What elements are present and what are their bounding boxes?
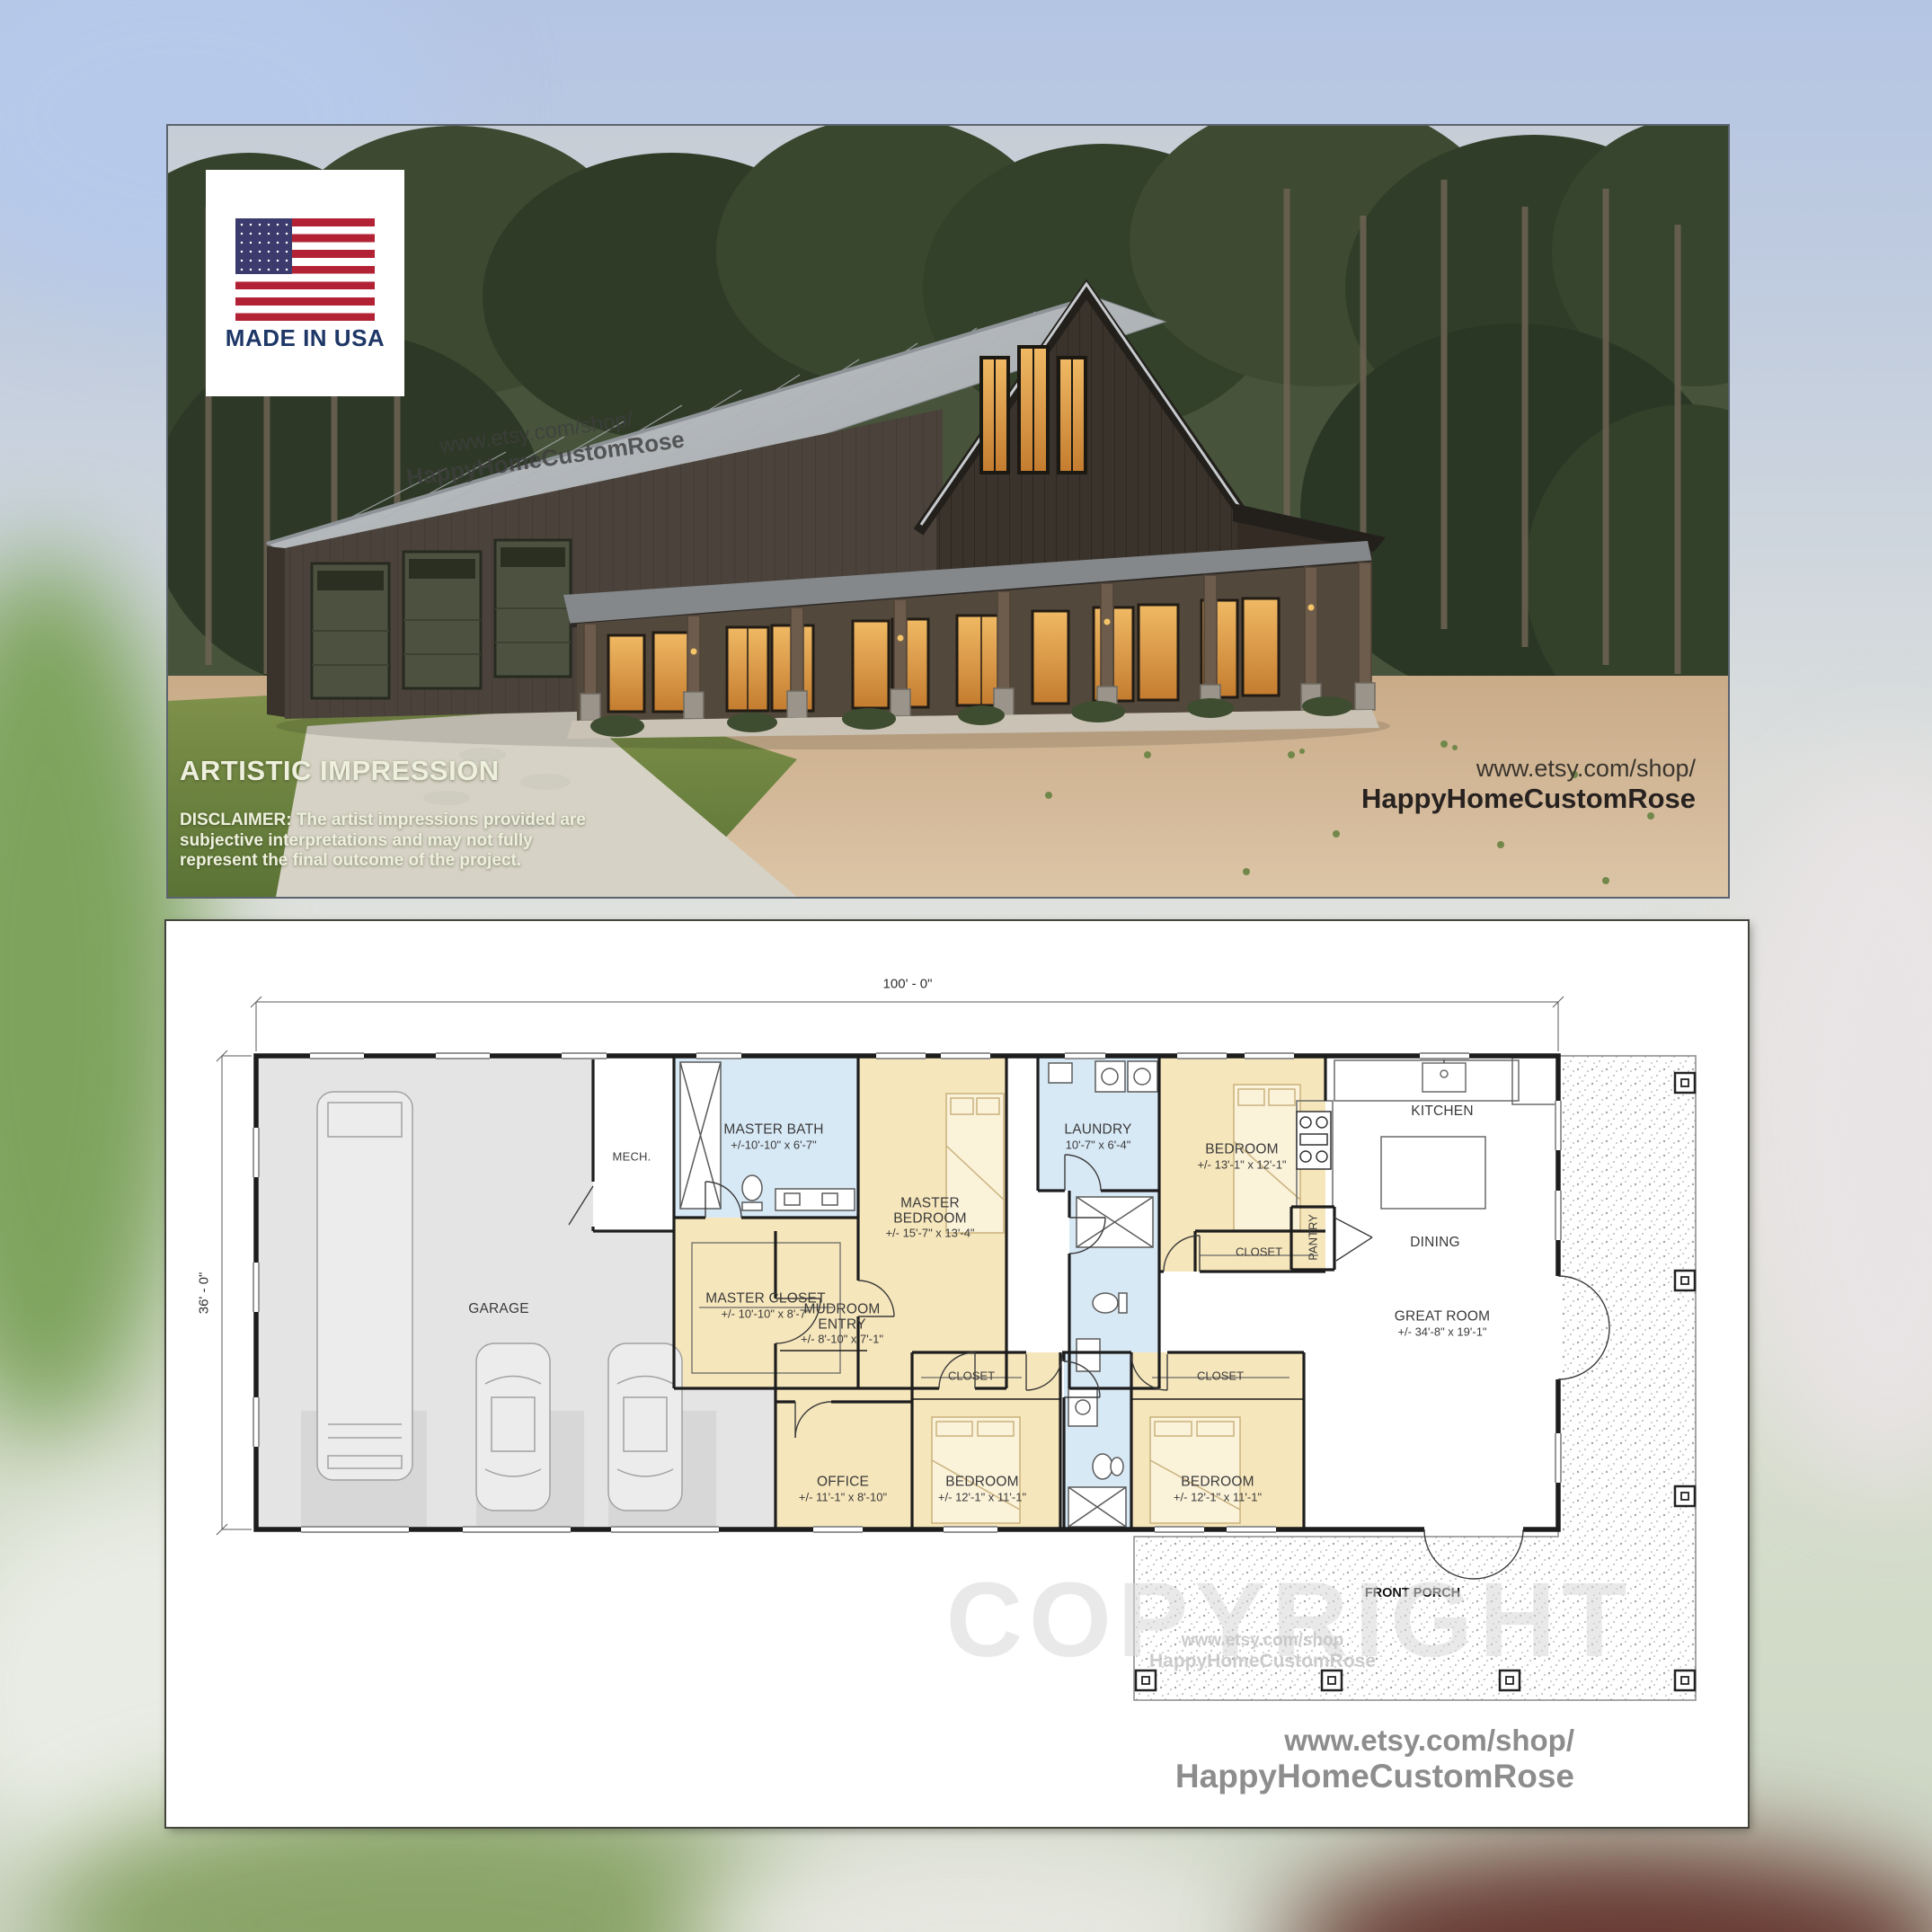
toilet-icon: [742, 1175, 762, 1201]
artistic-impression-title: ARTISTIC IMPRESSION: [180, 755, 586, 787]
floor-plan-sheet: 100' - 0" 36' - 0" GARAGE MECH. MASTER B…: [166, 921, 1748, 1827]
footer-shop-url: www.etsy.com/shop/ HappyHomeCustomRose: [1175, 1724, 1574, 1795]
disclaimer-line1: DISCLAIMER: The artist impressions provi…: [180, 811, 586, 831]
etsy-listing-image: MADE IN USA www.etsy.com/shop/ HappyHome…: [0, 0, 1932, 1932]
photo-shop-url-line2: HappyHomeCustomRose: [1361, 783, 1696, 815]
kitchen-island: [1381, 1137, 1485, 1209]
garage-doors: [312, 540, 571, 698]
room-label-dining: DINING: [1410, 1235, 1459, 1251]
room-label-pantry: PANTRY: [1307, 1214, 1320, 1261]
disclaimer-text: DISCLAIMER: The artist impressions provi…: [180, 811, 586, 872]
kitchen-fixtures: [1297, 1052, 1557, 1209]
flag-canton: [235, 218, 292, 274]
toilet-icon: [1093, 1293, 1118, 1313]
porch-shop-watermark: www.etsy.com/shop HappyHomeCustomRose: [1149, 1631, 1376, 1672]
room-label-closet-top: CLOSET: [1236, 1245, 1282, 1259]
room-label-great-room: GREAT ROOM +/- 34'-8" x 19'-1": [1395, 1309, 1491, 1339]
sink-icon: [1077, 1339, 1100, 1371]
toilet-icon: [1093, 1454, 1112, 1479]
car-icon: [476, 1343, 550, 1511]
disclaimer-line3: represent the final outcome of the proje…: [180, 851, 586, 872]
room-label-laundry: LAUNDRY 10'-7" x 6'-4": [1064, 1122, 1131, 1152]
room-label-mudroom: MUDROOM ENTRY +/- 8'-10" x 7'-1": [801, 1302, 883, 1346]
gable-windows: [981, 347, 1086, 473]
shower-icon: [1077, 1197, 1153, 1247]
room-label-bedroom-top: BEDROOM +/- 13'-1" x 12'-1": [1197, 1142, 1286, 1172]
room-label-closet-left: CLOSET: [948, 1369, 995, 1383]
stove-icon: [1297, 1112, 1331, 1169]
footer-shop-url-line2: HappyHomeCustomRose: [1175, 1758, 1574, 1795]
room-label-master-bath: MASTER BATH +/-10'-10" x 6'-7": [723, 1122, 823, 1152]
made-in-usa-label: MADE IN USA: [206, 324, 404, 352]
rv-icon: [317, 1092, 412, 1480]
room-label-kitchen: KITCHEN: [1411, 1103, 1473, 1120]
footer-shop-url-line1: www.etsy.com/shop/: [1175, 1724, 1574, 1758]
background-pink-blob: [1725, 764, 1932, 1483]
sink-icon: [1049, 1063, 1072, 1083]
shower-icon: [1068, 1487, 1126, 1527]
room-label-master-bedroom: MASTER BEDROOM +/- 15'-7" x 13'-4": [883, 1196, 977, 1240]
disclaimer-line2: subjective interpretations and may not f…: [180, 831, 586, 852]
background-maroon-blob: [1285, 1842, 1932, 1932]
room-label-closet-right: CLOSET: [1197, 1369, 1244, 1383]
artistic-impression-block: ARTISTIC IMPRESSION DISCLAIMER: The arti…: [180, 755, 586, 872]
room-label-office: OFFICE +/- 11'-1" x 8'-10": [799, 1475, 887, 1504]
us-flag-icon: [235, 218, 375, 321]
room-label-mech: MECH.: [613, 1150, 651, 1164]
sink-icon: [1068, 1388, 1097, 1426]
dim-width-label: 100' - 0": [883, 977, 933, 992]
room-label-bedroom-left: BEDROOM +/- 12'-1" x 11'-1": [938, 1475, 1026, 1504]
photo-panel: MADE IN USA www.etsy.com/shop/ HappyHome…: [168, 126, 1728, 897]
photo-shop-url-line1: www.etsy.com/shop/: [1361, 755, 1696, 783]
background-light-blob: [683, 1824, 1258, 1932]
washer-icon: [1095, 1061, 1125, 1092]
made-in-usa-badge: MADE IN USA: [206, 170, 404, 396]
dim-height-label: 36' - 0": [197, 1272, 212, 1315]
photo-shop-watermark: www.etsy.com/shop/ HappyHomeCustomRose: [1361, 755, 1696, 815]
room-label-garage: GARAGE: [468, 1301, 529, 1317]
shower-icon: [680, 1062, 721, 1209]
room-label-bedroom-right: BEDROOM +/- 12'-1" x 11'-1": [1174, 1475, 1262, 1504]
car-icon: [608, 1343, 682, 1511]
dryer-icon: [1128, 1061, 1157, 1092]
